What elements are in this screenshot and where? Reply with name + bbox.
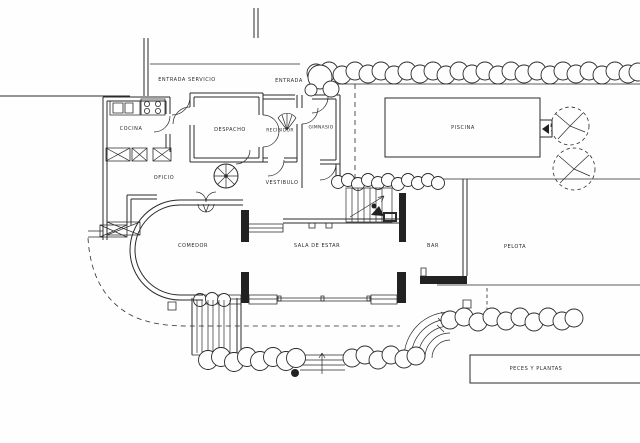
hedge-bottom-right: [441, 308, 583, 331]
label-gimnasio: GIMNASIO: [308, 126, 333, 131]
recibidor-walls: [263, 95, 328, 188]
floor-plan-page: ENTRADA SERVICIO ENTRADA COCINA DESPACHO…: [0, 0, 640, 443]
comedor-walls: [130, 200, 243, 300]
label-pelota: PELOTA: [504, 244, 526, 250]
hedge-bottom-left: [199, 348, 306, 372]
stairs-main: [346, 188, 396, 222]
label-entrada: ENTRADA: [275, 78, 303, 84]
label-cocina: COCINA: [120, 126, 143, 132]
linework: [0, 8, 640, 383]
label-piscina: PISCINA: [451, 125, 475, 131]
tree-dot-icon: [291, 369, 299, 377]
label-despacho: DESPACHO: [214, 127, 246, 133]
floor-plan-drawing: [0, 0, 640, 443]
label-sala-de-estar: SALA DE ESTAR: [294, 243, 340, 249]
label-bar: BAR: [427, 243, 439, 249]
label-peces-y-plantas: PECES Y PLANTAS: [510, 366, 563, 372]
roads: [0, 8, 300, 96]
diving-board-icon: [542, 124, 549, 134]
cocina-walls: [88, 97, 171, 240]
label-recibidor: RECIBIDOR: [266, 129, 294, 134]
label-oficio: OFICIO: [154, 175, 175, 181]
gimnasio-walls: [312, 95, 340, 180]
hedge-top: [307, 62, 640, 84]
label-vestibulo: VESTIBULO: [266, 180, 299, 186]
tree-icon: [553, 148, 595, 190]
spiral-stair: [214, 164, 238, 188]
tree-icon: [551, 107, 589, 145]
hedge-bottom-center: [343, 346, 425, 369]
label-entrada-servicio: ENTRADA SERVICIO: [158, 77, 216, 83]
bar-walls: [420, 268, 640, 311]
sala-walls: [194, 193, 407, 307]
cabinets: [100, 148, 171, 237]
label-comedor: COMEDOR: [178, 243, 208, 249]
